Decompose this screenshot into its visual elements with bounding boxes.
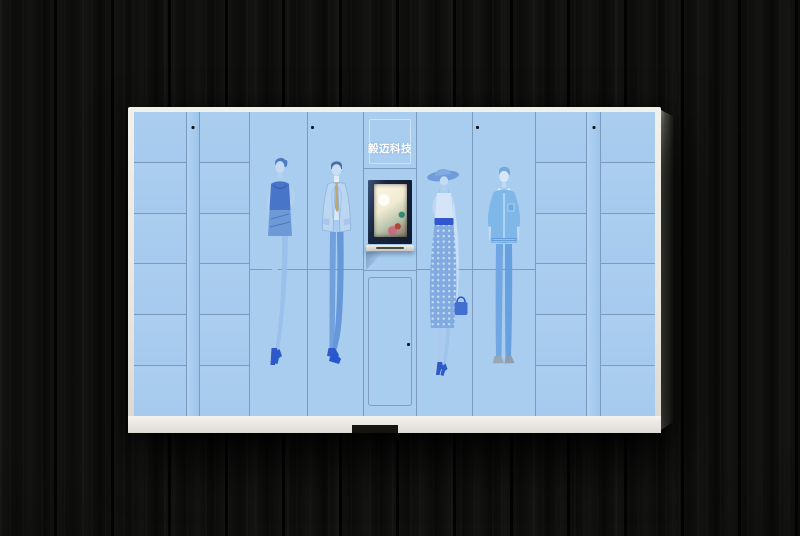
locker-cell: [200, 315, 249, 366]
locker-cell: [601, 315, 655, 366]
door-grid: 毅迈科技: [134, 112, 655, 416]
lock-dot: [192, 126, 195, 129]
cabinet-base: [128, 416, 661, 433]
locker-cell: [536, 163, 586, 214]
locker-cell: [601, 112, 655, 163]
locker-cell: [536, 315, 586, 366]
door-panel-bottom: [308, 270, 363, 416]
locker-cell: [134, 112, 186, 163]
card-slot-ledge: [366, 245, 414, 251]
locker-cell: [536, 366, 586, 416]
lock-dot: [311, 126, 314, 129]
locker-cell: [134, 366, 186, 416]
locker-cell: [200, 163, 249, 214]
locker-cell: [536, 214, 586, 265]
door-panel-top: [473, 112, 535, 270]
console-service-door: [364, 270, 416, 416]
locker-cell: [601, 163, 655, 214]
screen-module: [364, 168, 416, 270]
locker-cell: [134, 315, 186, 366]
door-panel-top: [250, 112, 307, 270]
right-locker-column-1: [535, 112, 586, 416]
locker-cell: [200, 214, 249, 265]
left-locker-column-2: [199, 112, 249, 416]
photo-stage: 毅迈科技: [0, 0, 800, 536]
lock-dot: [592, 126, 595, 129]
locker-cell: [200, 112, 249, 163]
lock-dot: [476, 126, 479, 129]
locker-cabinet: 毅迈科技: [128, 107, 661, 433]
cabinet-side-edge: [661, 110, 673, 430]
locker-cell: [134, 264, 186, 315]
locker-cell: [601, 214, 655, 265]
door-panel-top: [308, 112, 363, 270]
display-door-suit-man: [307, 112, 363, 416]
locker-cell: [134, 163, 186, 214]
display-door-casual-man: [472, 112, 535, 416]
lock-dot: [407, 343, 410, 346]
left-locker-column-1: [134, 112, 186, 416]
locker-cell: [536, 264, 586, 315]
locker-cell: [601, 366, 655, 416]
frame-post-right: [586, 112, 600, 416]
frame-post-left: [186, 112, 199, 416]
console-column: 毅迈科技: [363, 112, 416, 416]
base-notch: [352, 425, 398, 433]
kiosk-screen-bezel: [368, 180, 412, 244]
locker-cell: [536, 112, 586, 163]
door-panel-bottom: [417, 270, 472, 416]
door-panel-bottom: [250, 270, 307, 416]
door-panel-top: [417, 112, 472, 270]
locker-cell: [134, 214, 186, 265]
screen-shadow: [366, 252, 384, 270]
right-locker-column-2: [600, 112, 655, 416]
locker-cell: [601, 264, 655, 315]
brand-panel: 毅迈科技: [364, 112, 416, 168]
locker-cell: [200, 264, 249, 315]
brand-label: 毅迈科技: [364, 141, 416, 156]
locker-cell: [200, 366, 249, 416]
display-door-hat-woman: [416, 112, 472, 416]
door-panel-bottom: [473, 270, 535, 416]
display-door-woman-sketch: [249, 112, 307, 416]
kiosk-screen: [374, 184, 407, 237]
